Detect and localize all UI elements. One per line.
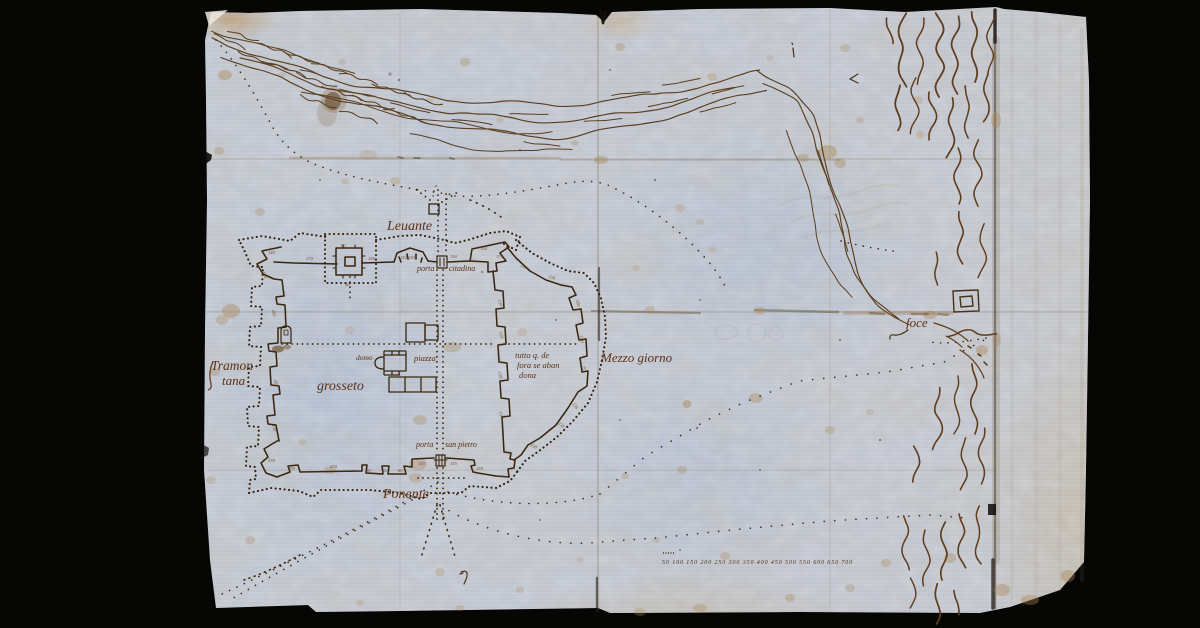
- svg-text:130: 130: [268, 458, 276, 463]
- svg-text:80: 80: [398, 468, 403, 473]
- svg-text:170: 170: [306, 256, 314, 261]
- svg-text:150: 150: [548, 274, 557, 281]
- svg-text:piazza: piazza: [413, 353, 436, 363]
- svg-text:75: 75: [581, 365, 587, 371]
- svg-text:150: 150: [480, 246, 488, 251]
- svg-text:135: 135: [571, 402, 579, 411]
- svg-text:150: 150: [450, 254, 458, 259]
- svg-text:150: 150: [498, 331, 504, 339]
- svg-text:205: 205: [271, 309, 277, 317]
- svg-text:Ponente: Ponente: [382, 487, 429, 502]
- svg-text:150: 150: [497, 299, 504, 308]
- svg-text:155: 155: [418, 461, 426, 466]
- svg-text:100: 100: [575, 299, 581, 307]
- svg-text:grosseto: grosseto: [317, 379, 364, 394]
- svg-text:250: 250: [288, 466, 296, 471]
- svg-text:150: 150: [579, 335, 585, 343]
- svg-text:170: 170: [496, 254, 504, 259]
- svg-text:san pietro: san pietro: [445, 440, 477, 449]
- svg-text:80: 80: [366, 468, 371, 473]
- svg-text:80: 80: [341, 243, 346, 248]
- svg-text:porta: porta: [415, 440, 433, 449]
- svg-text:Tramon: Tramon: [211, 358, 253, 373]
- svg-text:porta: porta: [416, 264, 434, 273]
- svg-text:50 100 150 200 250 300 350 400: 50 100 150 200 250 300 350 400 450 500 5…: [662, 559, 853, 566]
- svg-text:150: 150: [498, 411, 505, 420]
- svg-text:150: 150: [476, 466, 484, 471]
- svg-text:40: 40: [345, 282, 350, 287]
- svg-text:155: 155: [450, 461, 458, 466]
- svg-text:140: 140: [268, 250, 276, 255]
- svg-text:270: 270: [330, 464, 338, 469]
- svg-text:80: 80: [382, 468, 387, 473]
- svg-text:150: 150: [368, 256, 376, 261]
- svg-text:citadina: citadina: [449, 264, 475, 273]
- svg-text:tana: tana: [222, 373, 246, 388]
- svg-text:130: 130: [261, 271, 268, 280]
- svg-text:tutto q. de: tutto q. de: [515, 350, 549, 360]
- svg-text:135: 135: [557, 421, 566, 430]
- svg-text:150: 150: [530, 442, 539, 450]
- svg-text:domo: domo: [356, 353, 373, 362]
- svg-text:Leuante: Leuante: [386, 219, 432, 234]
- svg-text:dona: dona: [519, 370, 536, 380]
- svg-text:150: 150: [497, 371, 503, 379]
- svg-text:foce: foce: [906, 315, 928, 330]
- svg-text:fora se aban: fora se aban: [517, 360, 560, 370]
- svg-text:150 150: 150 150: [400, 255, 416, 260]
- svg-text:Mezzo giorno: Mezzo giorno: [600, 350, 673, 365]
